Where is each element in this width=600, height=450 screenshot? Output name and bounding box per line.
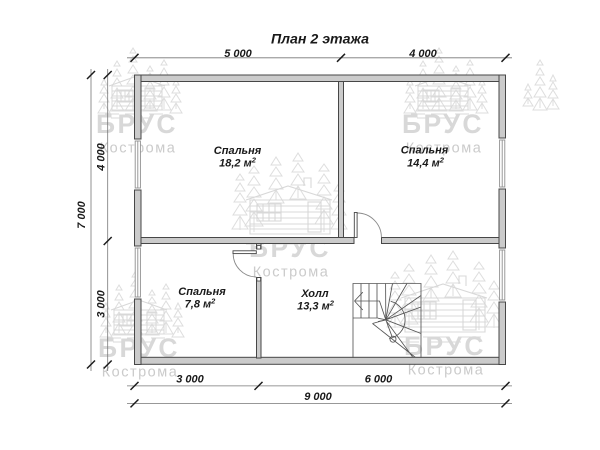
svg-text:5 000: 5 000 <box>224 48 252 60</box>
svg-text:4 000: 4 000 <box>408 48 437 60</box>
svg-text:Холл: Холл <box>300 288 328 300</box>
svg-text:4 000: 4 000 <box>96 142 108 171</box>
svg-text:3 000: 3 000 <box>96 289 108 317</box>
svg-text:14,4 м2: 14,4 м2 <box>407 155 445 169</box>
svg-text:7 000: 7 000 <box>76 200 88 228</box>
svg-text:7,8 м2: 7,8 м2 <box>185 296 217 310</box>
svg-text:6 000: 6 000 <box>365 374 393 386</box>
svg-text:9 000: 9 000 <box>304 391 332 403</box>
svg-text:Спальня: Спальня <box>178 286 226 298</box>
svg-text:План 2 этажа: План 2 этажа <box>271 32 369 48</box>
svg-text:13,3 м2: 13,3 м2 <box>297 298 335 312</box>
svg-text:18,2 м2: 18,2 м2 <box>219 155 257 169</box>
svg-text:3 000: 3 000 <box>176 374 204 386</box>
